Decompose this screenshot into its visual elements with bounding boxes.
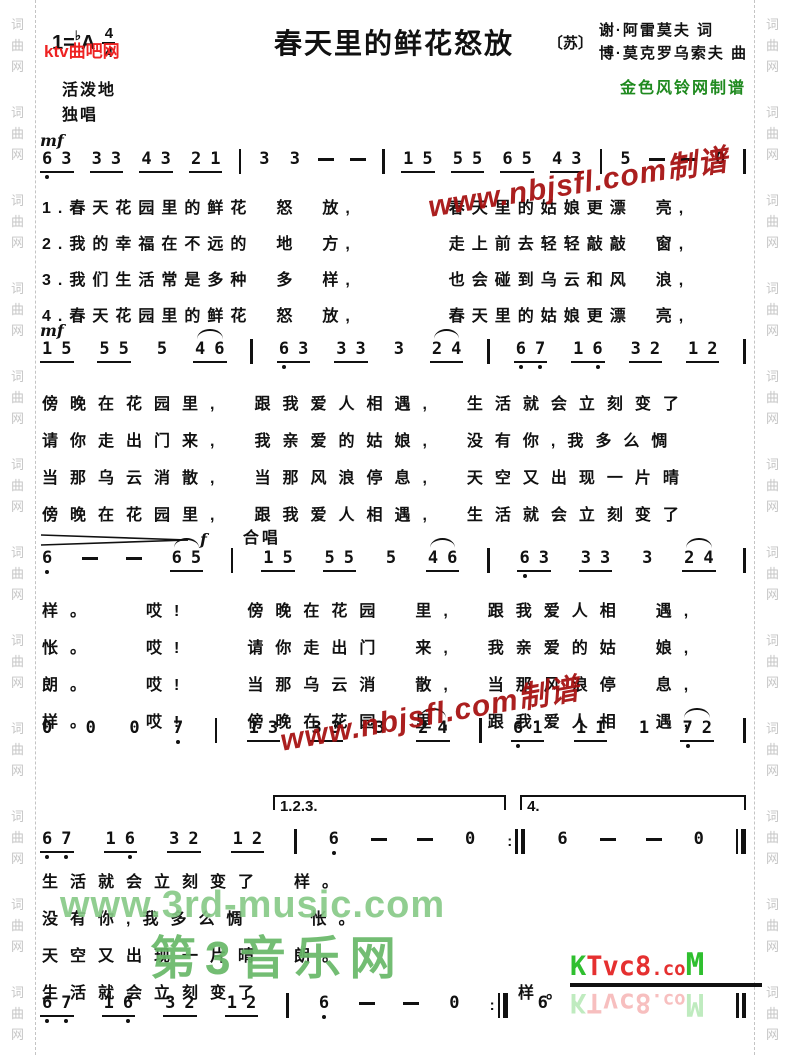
ktvc8-logo: KTvc8.coM KTvc8.coM [570,950,765,1019]
note-group: 0 [40,720,54,737]
note-group: 6 [555,831,569,848]
tempo-marking: 活泼地 [62,76,116,100]
note-group: 0 [692,831,706,848]
dynamic-marking: mf [40,133,64,149]
bar [521,829,526,854]
note-group: 5 [155,341,169,358]
duration-dash [359,1002,375,1005]
logo-part: M [686,986,705,1022]
note: 0 [694,831,704,848]
note: 1 [263,550,273,567]
third-music-cn-watermark: 第3音乐网 [150,922,405,988]
note: 6 [329,831,339,848]
margin-watermark-char: 词 [766,806,779,827]
note: 1 [104,995,114,1012]
music-system-5: 1.2.3. 4. 6716321260:60 [40,795,746,854]
note: 7 [535,341,545,358]
margin-watermark-char: 词 [11,190,24,211]
barline [743,149,746,174]
note: 5 [472,151,482,168]
margin-watermark-char: 词 [766,366,779,387]
note-group: 15 [401,151,435,173]
note: 6 [42,995,52,1012]
logo-part: M [686,947,705,983]
note-group: 0 [127,720,141,737]
margin-watermark-char: 词 [11,806,24,827]
note: 3 [169,831,179,848]
margin-watermark-char: 网 [766,408,779,429]
margin-watermark-char: 网 [766,760,779,781]
note: 1 [403,151,413,168]
margin-watermark-char: 网 [11,936,24,957]
ktvc8-logo-reflection: KTvc8.coM [570,988,765,1019]
volta-label: 1.2.3. [280,798,318,815]
note: 6 [513,720,523,737]
note: 3 [336,341,346,358]
note: 4 [703,550,713,567]
margin-watermark-char: 网 [766,56,779,77]
note-group: 32 [167,831,201,853]
lyric-line: 当那乌云消散, 当那风浪停息, 天空又出现一片晴 [42,464,750,488]
note: 3 [259,151,269,168]
logo-part: Tvc8 [586,951,651,982]
sheet-music-page: 词曲网词曲网词曲网词曲网词曲网词曲网词曲网词曲网词曲网词曲网词曲网词曲网 词曲网… [0,0,790,1055]
note-group: 11 [574,720,608,742]
dynamic-marking: f [200,532,207,548]
note: 5 [453,151,463,168]
barline [743,718,746,743]
note-group: 33 [579,550,613,572]
margin-watermark-char: 曲 [766,387,779,408]
note-group: 24 [682,550,716,572]
note-group: 12 [686,341,720,363]
logo-part: Tvc8 [586,987,651,1018]
repeat-barline: : [507,831,525,854]
note-group: 46 [426,550,460,572]
margin-watermark-char: 词 [766,102,779,123]
note: 0 [42,720,52,737]
right-margin-watermark: 词曲网词曲网词曲网词曲网词曲网词曲网词曲网词曲网词曲网词曲网词曲网词曲网 [754,0,790,1055]
margin-watermark-char: 词 [766,14,779,35]
note: 5 [282,550,292,567]
note-group: 67 [40,831,74,853]
lyric-line: 2.我的幸福在不远的 地 方, 走上前去轻轻敲敲 窗, [42,230,750,254]
margin-watermark-char: 词 [766,894,779,915]
margin-watermark-char: 网 [11,144,24,165]
margin-watermark-char: 网 [766,496,779,517]
note: 6 [42,151,52,168]
note: 5 [344,550,354,567]
margin-watermark-char: 网 [766,936,779,957]
note-group: 55 [451,151,485,173]
note: 6 [42,550,52,567]
note: 1 [42,341,52,358]
note: 4 [451,341,461,358]
lyric-line: 1.春天花园里的鲜花 怒 放, 春天里的姑娘更漂 亮, [42,194,750,218]
note-group: 3 [257,151,271,168]
barline [215,718,218,743]
volta-bracket-123: 1.2.3. [273,795,506,810]
margin-watermark-char: 词 [11,102,24,123]
barline [239,149,242,174]
margin-watermark-char: 曲 [766,651,779,672]
note: 3 [165,995,175,1012]
margin-watermark-char: 曲 [11,35,24,56]
barline [294,829,297,854]
logo-part: K [570,951,586,982]
margin-watermark-char: 网 [766,672,779,693]
note-group: 33 [334,341,368,363]
note: 1 [688,341,698,358]
note: 0 [465,831,475,848]
barline [231,548,234,573]
margin-watermark-char: 曲 [11,299,24,320]
note: 1 [249,720,259,737]
note: 6 [214,341,224,358]
note-group: 67 [40,995,74,1017]
note: 3 [356,341,366,358]
note: 3 [111,151,121,168]
note: 6 [319,995,329,1012]
note: 6 [125,831,135,848]
margin-watermark-char: 曲 [766,299,779,320]
bar [515,829,518,854]
margin-watermark-char: 网 [766,584,779,605]
margin-watermark-char: 网 [11,672,24,693]
margin-watermark-char: 曲 [766,1003,779,1024]
repeat-dots: : [490,993,495,1018]
note: 0 [449,995,459,1012]
note-group: 46 [193,341,227,363]
composer-credit: 博·莫克罗乌索夫 曲 [599,43,748,64]
margin-watermark-char: 词 [11,14,24,35]
ktvc8-logo-text: KTvc8.coM [570,950,765,981]
note: 6 [516,341,526,358]
margin-watermark-char: 曲 [11,475,24,496]
note: 2 [702,720,712,737]
diminuendo-hairpin [40,534,190,546]
note-group: 63 [40,151,74,173]
note: 5 [325,550,335,567]
note-group: 3 [640,550,654,567]
bar [741,829,746,854]
note: 2 [650,341,660,358]
note: 5 [61,341,71,358]
note-group: 1 [637,720,651,737]
barline [286,993,289,1018]
margin-watermark-char: 网 [766,320,779,341]
note: 5 [422,151,432,168]
note: 7 [61,831,71,848]
margin-watermark-char: 曲 [766,563,779,584]
note-group: 72 [680,720,714,742]
verse-lyrics-block: 1.春天花园里的鲜花 怒 放, 春天里的姑娘更漂 亮,2.我的幸福在不远的 地 … [42,194,750,338]
music-system-2: mf 1555546633332467163212 [40,323,746,364]
margin-watermark-char: 曲 [11,211,24,232]
note: 6 [172,550,182,567]
lyric-line: 样。 哎! 傍晚在花园 里, 跟我爱人相 遇, [42,597,750,621]
note: 6 [123,995,133,1012]
barline [382,149,385,174]
margin-watermark-char: 网 [11,1024,24,1045]
note-group: 55 [97,341,131,363]
note: 2 [188,831,198,848]
note: 2 [246,995,256,1012]
note-group: 16 [571,341,605,363]
barline [743,339,746,364]
note: 3 [581,550,591,567]
margin-watermark-char: 曲 [11,739,24,760]
note: 2 [184,995,194,1012]
barline [743,548,746,573]
note: 3 [61,151,71,168]
note: 3 [290,151,300,168]
margin-watermark-char: 词 [766,542,779,563]
repeat-dots: : [507,829,512,854]
final-barline [736,831,746,854]
margin-watermark-char: 网 [766,232,779,253]
margin-watermark-char: 网 [766,144,779,165]
note: 4 [195,341,205,358]
duration-dash [417,838,433,841]
voice-label: 独唱 [62,101,98,125]
note: 1 [233,831,243,848]
duration-dash [403,1002,419,1005]
note-group: 13 [247,720,281,742]
note-group: 7 [171,720,185,737]
duration-dash [82,557,98,560]
note: 2 [432,341,442,358]
margin-watermark-char: 词 [766,454,779,475]
notation-line: 1555546633332467163212 [40,341,746,364]
note-group: 67 [514,341,548,363]
margin-watermark-char: 词 [766,630,779,651]
notation-line: 6716321260:60 [40,831,746,854]
note: 6 [447,550,457,567]
margin-watermark-char: 曲 [766,915,779,936]
dynamic-marking: mf [40,323,64,339]
note-group: 6 [327,831,341,848]
margin-watermark-char: 词 [11,542,24,563]
lyricist-credit: 谢·阿雷莫夫 词 [599,20,748,41]
note-group: 63 [277,341,311,363]
note: 3 [631,341,641,358]
note: 7 [682,720,692,737]
note: 3 [298,341,308,358]
note: 3 [161,151,171,168]
margin-watermark-char: 词 [11,718,24,739]
third-music-url-watermark: www.3rd-music.com [60,884,445,927]
note-group: 16 [104,831,138,853]
margin-watermark-char: 曲 [11,651,24,672]
note-group: 32 [629,341,663,363]
note: 7 [61,995,71,1012]
logo-part: K [570,987,586,1018]
note: 6 [519,550,529,567]
note: 1 [227,995,237,1012]
bar [498,993,501,1018]
note-group: 32 [163,995,197,1017]
logo-part: .co [651,989,685,1011]
margin-watermark-char: 曲 [766,739,779,760]
margin-watermark-char: 词 [11,278,24,299]
lyrics-block-2: 傍晚在花园里, 跟我爱人相遇, 生活就会立刻变了请你走出门来, 我亲爱的姑娘, … [42,390,750,538]
barline [250,339,253,364]
note: 2 [707,341,717,358]
duration-dash [318,158,334,161]
note-group: 61 [511,720,545,742]
lyric-line: 傍晚在花园里, 跟我爱人相遇, 生活就会立刻变了 [42,501,750,525]
margin-watermark-char: 曲 [11,563,24,584]
note-group: 5 [384,550,398,567]
note-group: 12 [231,831,265,853]
margin-watermark-char: 网 [11,408,24,429]
note-group: 0 [447,995,461,1012]
margin-watermark-char: 网 [11,848,24,869]
margin-watermark-char: 网 [11,320,24,341]
margin-watermark-char: 曲 [11,915,24,936]
barline [487,548,490,573]
note-group: 0 [463,831,477,848]
note-group: 55 [323,550,357,572]
bar [503,993,508,1018]
note: 5 [119,341,129,358]
margin-watermark-char: 曲 [766,475,779,496]
note-group: 15 [261,550,295,572]
margin-watermark-char: 网 [766,848,779,869]
lyric-line: 3.我们生活常是多种 多 样, 也会碰到乌云和风 浪, [42,266,750,290]
margin-watermark-char: 网 [11,232,24,253]
note: 1 [532,720,542,737]
duration-dash [126,557,142,560]
note: 1 [639,720,649,737]
bar [736,829,739,854]
margin-watermark-char: 词 [11,630,24,651]
margin-watermark-char: 曲 [11,827,24,848]
lyric-line: 请你走出门来, 我亲爱的姑娘, 没有你,我多么惆 [42,427,750,451]
margin-watermark-char: 曲 [766,35,779,56]
volta-bracket-4: 4. [520,795,746,810]
duration-dash [646,838,662,841]
note: 1 [595,720,605,737]
note: 0 [129,720,139,737]
margin-watermark-char: 词 [11,366,24,387]
note-group: 24 [430,341,464,363]
note-group: 0 [84,720,98,737]
note: 6 [592,341,602,358]
note-group: 43 [139,151,173,173]
lyric-line: 傍晚在花园里, 跟我爱人相遇, 生活就会立刻变了 [42,390,750,414]
margin-watermark-char: 词 [766,278,779,299]
logo-part: .co [651,958,685,980]
note-group: 3 [392,341,406,358]
note: 2 [252,831,262,848]
note-group: 15 [40,341,74,363]
note: 3 [539,550,549,567]
note: 1 [210,151,220,168]
duration-dash [600,838,616,841]
margin-watermark-char: 词 [766,190,779,211]
note: 4 [141,151,151,168]
note: 5 [157,341,167,358]
note: 1 [576,720,586,737]
duration-dash [350,158,366,161]
margin-watermark-char: 曲 [11,123,24,144]
margin-watermark-char: 曲 [766,123,779,144]
note-group: 6 [536,995,550,1012]
note: 4 [428,550,438,567]
note: 3 [642,550,652,567]
margin-watermark-char: 词 [11,982,24,1003]
margin-watermark-char: 曲 [11,387,24,408]
ktvquba-watermark: ktv曲吧网 [44,37,120,62]
note: 6 [538,995,548,1012]
note-group: 33 [90,151,124,173]
origin-label: 〔苏〕 [548,32,593,53]
note-group: 21 [189,151,223,173]
margin-watermark-char: 曲 [766,827,779,848]
repeat-barline: : [490,995,508,1018]
note: 3 [394,341,404,358]
margin-watermark-char: 曲 [11,1003,24,1024]
lyric-line: 朗。 哎! 当那乌云消 散, 当那风浪停 息, [42,671,750,695]
note: 1 [106,831,116,848]
margin-watermark-char: 网 [11,584,24,605]
duration-dash [371,838,387,841]
credits: 〔苏〕 谢·阿雷莫夫 词 博·莫克罗乌索夫 曲 [548,20,748,64]
note: 1 [573,341,583,358]
note: 5 [99,341,109,358]
music-system-3: f 合唱 66515555466333324 [40,524,746,573]
publisher-credit: 金色风铃网制谱 [620,74,746,98]
left-margin-watermark: 词曲网词曲网词曲网词曲网词曲网词曲网词曲网词曲网词曲网词曲网词曲网词曲网 [0,0,36,1055]
note: 5 [191,550,201,567]
note: 6 [42,831,52,848]
note: 3 [92,151,102,168]
logo-underline [570,983,762,987]
note: 2 [191,151,201,168]
note-group: 12 [225,995,259,1017]
note-group: 3 [288,151,302,168]
note: 7 [173,720,183,737]
margin-watermark-char: 词 [766,982,779,1003]
note: 6 [557,831,567,848]
note: 5 [386,550,396,567]
note: 2 [684,550,694,567]
margin-watermark-char: 词 [11,454,24,475]
margin-watermark-char: 词 [766,718,779,739]
margin-watermark-char: 网 [766,1024,779,1045]
lyric-line: 怅。 哎! 请你走出门 来, 我亲爱的姑 娘, [42,634,750,658]
note: 6 [279,341,289,358]
barline [487,339,490,364]
note-group: 6 [317,995,331,1012]
margin-watermark-char: 网 [11,496,24,517]
note-group: 65 [170,550,204,572]
note: 3 [600,550,610,567]
margin-watermark-char: 网 [11,56,24,77]
note-group: 16 [102,995,136,1017]
margin-watermark-char: 曲 [766,211,779,232]
chorus-label: 合唱 [243,524,281,548]
note-group: 6 [40,550,54,567]
margin-watermark-char: 词 [11,894,24,915]
note: 0 [86,720,96,737]
note: 6 [502,151,512,168]
margin-watermark-char: 网 [11,760,24,781]
note-group: 63 [517,550,551,572]
volta-label: 4. [527,798,540,815]
